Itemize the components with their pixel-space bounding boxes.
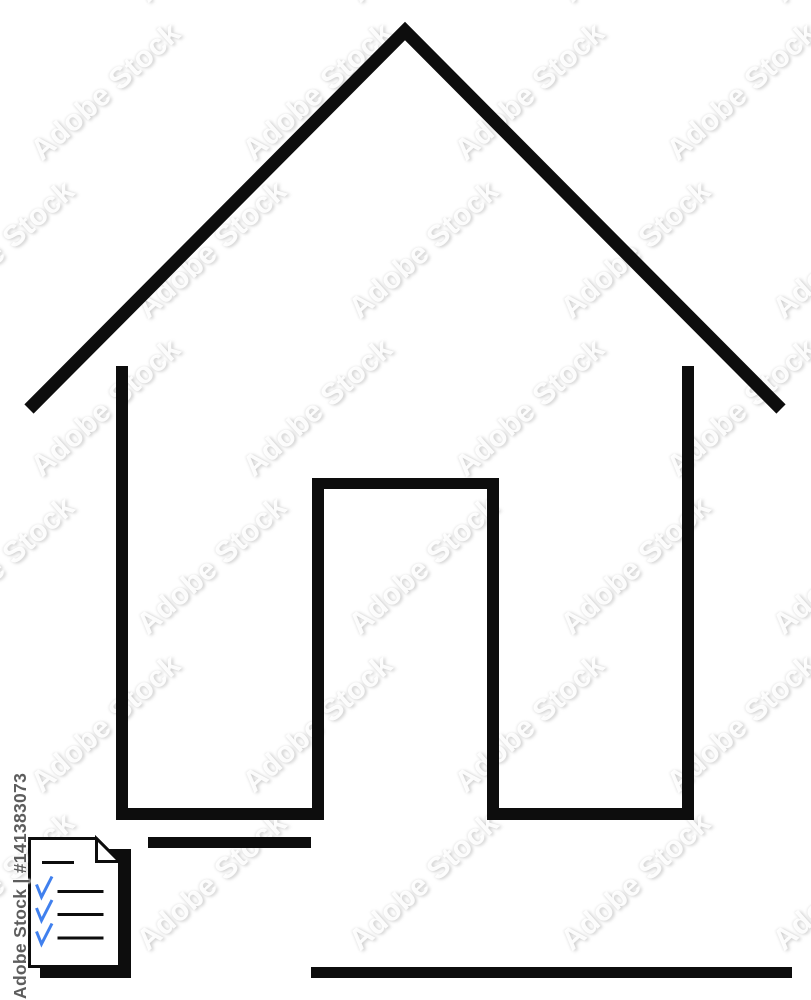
house-checklist-illustration [0, 0, 811, 1000]
floor-line-left [116, 808, 324, 820]
checklist-document-icon [30, 839, 132, 979]
door-outline [312, 478, 499, 820]
ground-line-long [311, 967, 792, 978]
house-icon [29, 31, 781, 820]
door-top-line [312, 478, 499, 489]
stock-credit-watermark: Adobe Stock | #141383073 [10, 773, 31, 999]
ground-line-short [148, 837, 311, 848]
roof-outline [29, 31, 781, 409]
floor-line-right [487, 808, 694, 820]
right-wall-line [682, 366, 694, 820]
stock-image-canvas: Adobe StockAdobe StockAdobe StockAdobe S… [0, 0, 811, 1000]
door-right-line [487, 478, 499, 820]
left-wall-line [116, 366, 128, 820]
door-left-line [312, 478, 324, 820]
